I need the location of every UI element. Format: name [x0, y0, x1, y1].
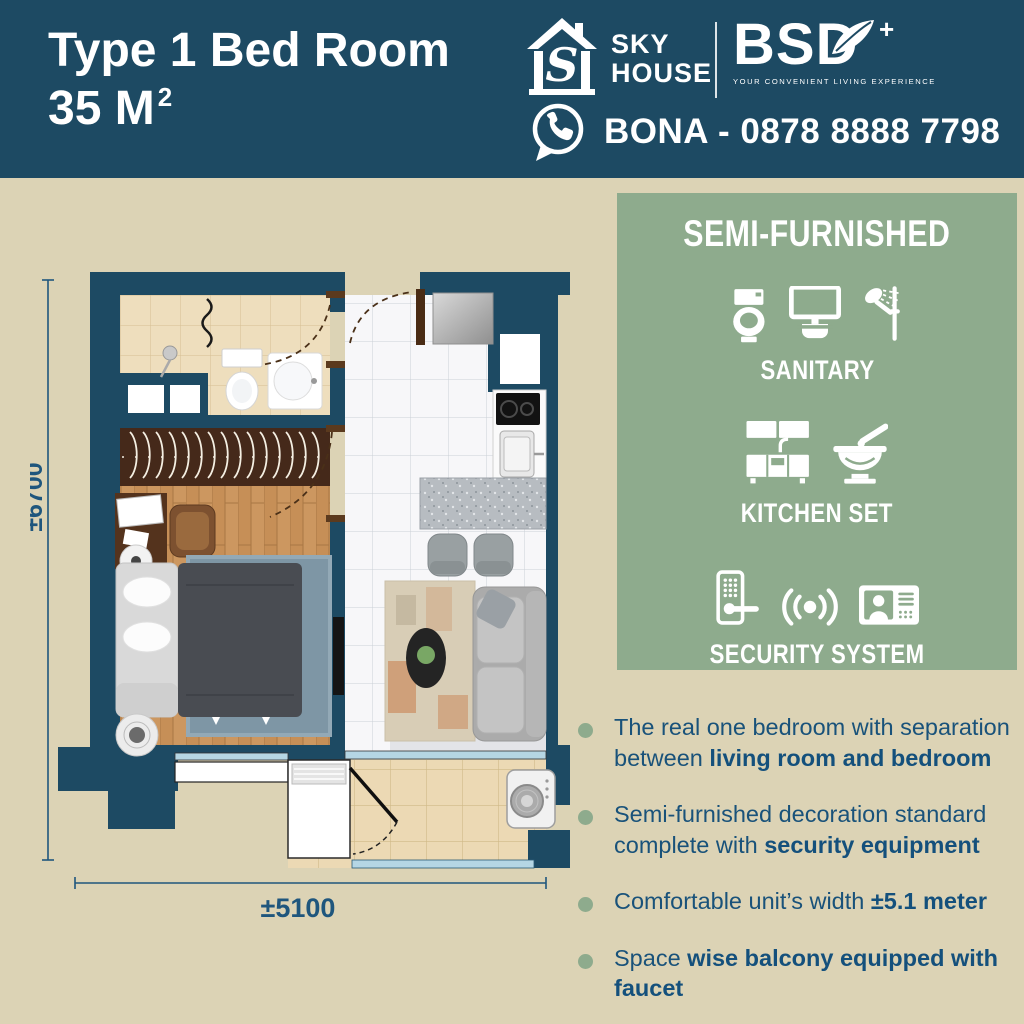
cabinet [433, 293, 493, 344]
sanitary-label: SANITARY [760, 355, 874, 386]
feature-item: Semi-furnished decoration standard compl… [578, 799, 1020, 860]
feature-text: Comfortable unit’s width ±5.1 meter [614, 886, 987, 917]
sky-house-logo-icon: S [527, 18, 597, 96]
area-superscript: 2 [158, 82, 172, 112]
unit-type-title: Type 1 Bed Room [48, 22, 450, 80]
bullet-dot [578, 810, 593, 825]
flyer-page: Type 1 Bed Room 35 M2 S SKY HOUSE BSD [0, 0, 1024, 1024]
security-icons-row [716, 569, 919, 627]
contact-phone: BONA - 0878 8888 7798 [604, 112, 1000, 152]
toilet-tank [222, 349, 262, 367]
panel-title: SEMI-FURNISHED [683, 213, 950, 255]
pillow [123, 577, 171, 607]
kitchen-icons-row [746, 420, 888, 486]
island-counter [420, 478, 546, 529]
shower-head [163, 346, 177, 360]
window-sill [175, 762, 288, 782]
unit-area: 35 M2 [48, 80, 450, 138]
wash-basin-icon [789, 286, 841, 343]
bullet-dot [578, 723, 593, 738]
laptop [117, 495, 164, 527]
brand-tagline: YOUR CONVENIENT LIVING EXPERIENCE [733, 77, 963, 86]
height-dimension-label: ±6700 [30, 462, 48, 531]
entrance-door [416, 289, 425, 345]
plant [417, 646, 435, 664]
contact-row: BONA - 0878 8888 7798 [527, 100, 1000, 164]
brand-divider [715, 22, 717, 98]
toilet-icon [731, 289, 769, 343]
kitchen-set-label: KITCHEN SET [741, 498, 893, 529]
floor-plan: ±6700 ±5100 [30, 265, 575, 925]
feature-item: The real one bedroom with separation bet… [578, 712, 1020, 773]
balcony-railing-glass [352, 860, 534, 868]
feature-list: The real one bedroom with separation bet… [578, 712, 1020, 1024]
sliding-glass [345, 751, 546, 759]
bullet-dot [578, 897, 593, 912]
pillow [123, 622, 171, 652]
tv [333, 617, 344, 695]
video-intercom-icon [859, 583, 919, 627]
kitchen-cabinet-icon [746, 421, 812, 486]
leaf-icon [830, 18, 876, 58]
bedroom-window-glass [175, 753, 288, 760]
whatsapp-icon [527, 100, 589, 164]
header-banner: Type 1 Bed Room 35 M2 S SKY HOUSE BSD [0, 0, 1024, 178]
wall-niche [500, 334, 540, 384]
feature-text: The real one bedroom with separation bet… [614, 712, 1020, 773]
page-title: Type 1 Bed Room 35 M2 [48, 22, 450, 137]
shower-icon [861, 284, 903, 343]
feature-text: Space wise balcony equipped with faucet [614, 943, 1020, 1004]
bsd-logo: BSD + YOUR CONVENIENT LIVING EXPERIENCE [733, 16, 963, 86]
width-dimension-label: ±5100 [261, 893, 336, 923]
feature-item: Space wise balcony equipped with faucet [578, 943, 1020, 1004]
sky-house-wordmark: SKY HOUSE [611, 30, 712, 87]
logo-letter: S [545, 38, 578, 92]
sanitary-icons-row [731, 281, 903, 343]
feature-item: Comfortable unit’s width ±5.1 meter [578, 886, 1020, 917]
door-lock-icon [716, 570, 761, 627]
semi-furnished-panel: SEMI-FURNISHED [617, 193, 1017, 670]
security-system-label: SECURITY SYSTEM [710, 639, 925, 670]
alarm-signal-icon [781, 587, 839, 627]
bed-duvet [178, 563, 302, 717]
bedroom-furniture [115, 425, 345, 756]
bullet-dot [578, 954, 593, 969]
bsd-plus-sign: + [879, 14, 894, 45]
mortar-pestle-icon [832, 423, 888, 486]
feature-text: Semi-furnished decoration standard compl… [614, 799, 1020, 860]
